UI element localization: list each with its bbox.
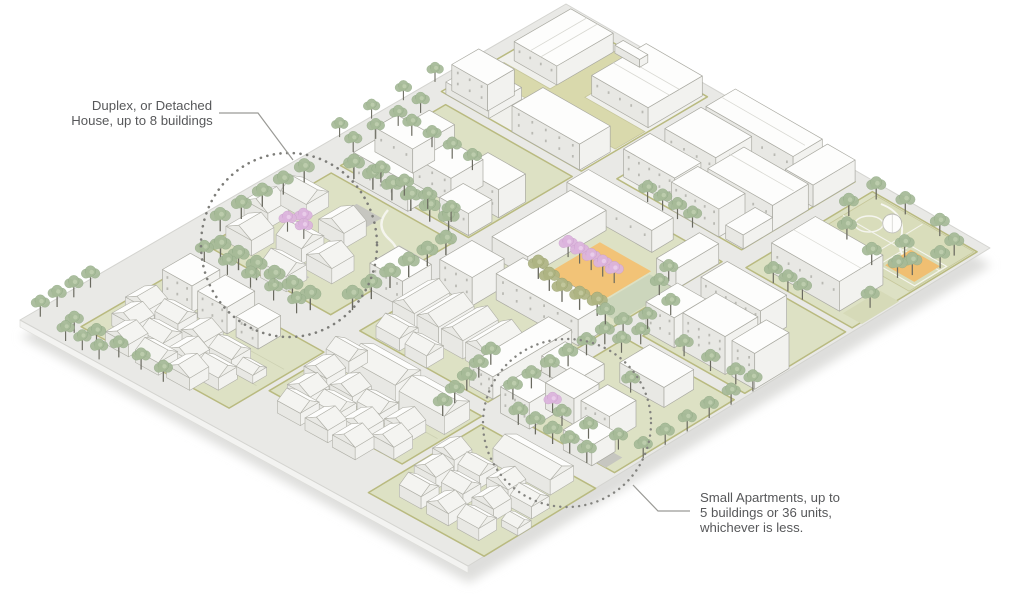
svg-text:Duplex, or Detached: Duplex, or Detached bbox=[92, 98, 212, 113]
svg-text:whichever is less.: whichever is less. bbox=[699, 520, 803, 535]
svg-text:5 buildings or 36 units,: 5 buildings or 36 units, bbox=[700, 505, 832, 520]
svg-text:Small Apartments, up to: Small Apartments, up to bbox=[700, 490, 840, 505]
svg-text:House, up to 8 buildings: House, up to 8 buildings bbox=[71, 113, 213, 128]
